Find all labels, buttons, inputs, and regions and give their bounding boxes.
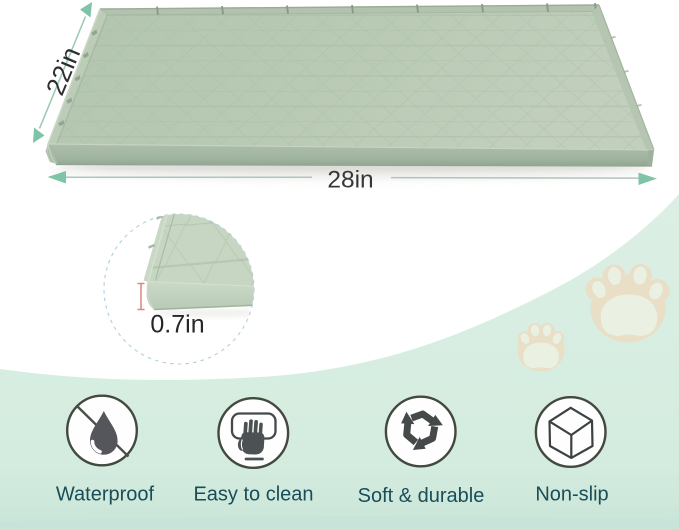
svg-text:Easy to clean: Easy to clean: [193, 484, 313, 506]
svg-text:28in: 28in: [327, 167, 373, 194]
svg-text:Waterproof: Waterproof: [56, 484, 155, 506]
svg-text:Non-slip: Non-slip: [535, 484, 608, 506]
svg-text:0.7in: 0.7in: [150, 311, 204, 339]
svg-text:Soft & durable: Soft & durable: [358, 485, 485, 507]
